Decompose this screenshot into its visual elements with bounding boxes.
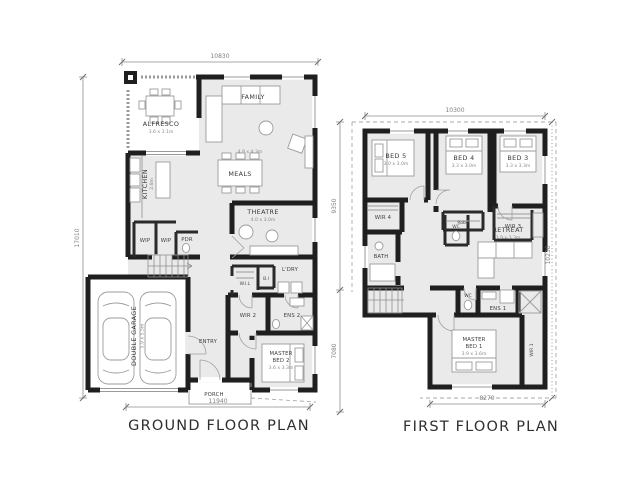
dim-ground-bottom: 11940: [208, 398, 227, 405]
ground-floor-plan: ALFRESCO 3.6 x 3.1m FAMILY 4.9 x 4.3m KI…: [74, 53, 321, 434]
room-label-ens2: ENS 2: [284, 313, 301, 319]
room-dim-bed5: 3.0 x 3.0m: [384, 161, 409, 167]
ground-floor-plan-title: GROUND FLOOR PLAN: [128, 418, 310, 434]
room-label-wil: W.I.L: [240, 281, 251, 287]
room-label-ldry: L'DRY: [282, 267, 299, 273]
room-dim-kitchen: 2.6m: [149, 178, 155, 190]
room-label-garage: DOUBLE GARAGE: [130, 306, 138, 366]
floor-plan-image: ALFRESCO 3.6 x 3.1m FAMILY 4.9 x 4.3m KI…: [0, 0, 642, 500]
room-label-entry: ENTRY: [199, 339, 218, 345]
room-label-bed3: BED 3: [507, 154, 528, 162]
room-label-retreat: RETREAT: [492, 226, 523, 234]
room-label-theatre: THEATRE: [246, 208, 278, 216]
room-dim-bed4: 3.3 x 3.0m: [452, 163, 477, 169]
first-floor-plan: BED 5 3.0 x 3.0m BED 4 3.3 x 3.0m BED 3 …: [331, 107, 559, 435]
room-label-kitchen: KITCHEN: [141, 169, 149, 199]
room-dim-family: 4.9 x 4.3m: [238, 149, 263, 155]
room-label-alfresco: ALFRESCO: [143, 120, 179, 128]
room-dim-alfresco: 3.6 x 3.1m: [149, 129, 174, 135]
dim-first-left-lower: 7080: [331, 343, 338, 358]
room-label-master2-line2: BED 2: [272, 358, 289, 364]
room-label-bath: BATH: [374, 254, 389, 260]
room-label-wc-lower: WC: [464, 293, 472, 299]
room-dim-master1: 3.9 x 3.6m: [462, 351, 487, 357]
room-label-pdr: PDR: [181, 237, 193, 243]
room-label-bed5: BED 5: [385, 152, 406, 160]
room-label-wir2: WIR 2: [240, 313, 257, 319]
dim-ground-left: 17010: [74, 228, 81, 247]
room-label-bi: B.I: [263, 276, 269, 282]
room-label-wc-upper: WC: [452, 224, 460, 230]
room-label-bed4: BED 4: [453, 154, 474, 162]
dim-first-left-upper: 9350: [331, 198, 338, 213]
dim-ground-top: 10830: [210, 53, 229, 60]
dim-first-bottom: 8270: [479, 395, 494, 402]
room-dim-master2: 3.6 x 3.3m: [269, 365, 294, 371]
room-label-meals: MEALS: [228, 170, 251, 178]
room-label-master1-line1: MASTER: [462, 337, 485, 343]
room-label-ens1: ENS 1: [490, 306, 507, 312]
room-dim-retreat: 3.9 x 3.3m: [496, 235, 521, 241]
dim-first-top: 10300: [445, 107, 464, 114]
room-label-family: FAMILY: [241, 93, 265, 101]
room-label-master1-line2: BED 1: [465, 344, 482, 350]
room-label-wip-b: WIP: [161, 238, 172, 244]
room-dim-bed3: 3.3 x 3.3m: [506, 163, 531, 169]
dim-first-right: 10230: [545, 245, 552, 264]
room-label-wip-a: WIP: [140, 238, 151, 244]
room-dim-garage: 5.9 x 5.5m: [140, 323, 146, 348]
room-label-master2-line1: MASTER: [269, 351, 292, 357]
room-dim-theatre: 4.0 x 3.0m: [251, 217, 276, 223]
room-label-wir4: WIR 4: [375, 215, 392, 221]
room-label-wir1: WIR 1: [529, 343, 535, 356]
first-floor-plan-title: FIRST FLOOR PLAN: [403, 419, 559, 435]
